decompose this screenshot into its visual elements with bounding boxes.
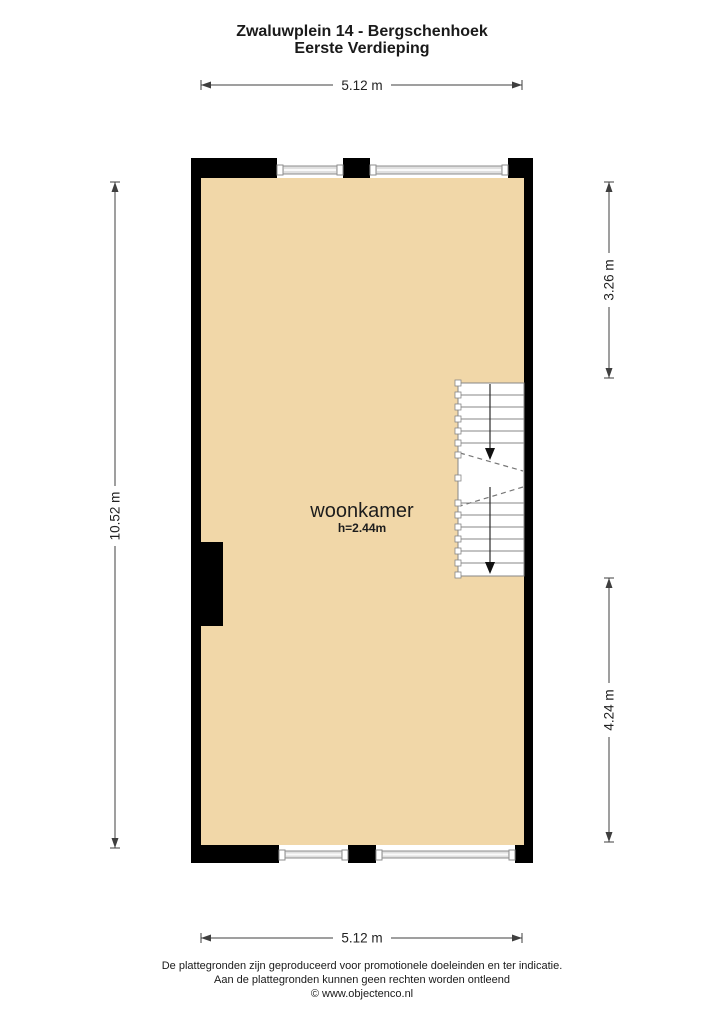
dimension-right-lower-label: 4.24 m: [602, 689, 617, 730]
room-name-label: woonkamer: [309, 500, 414, 522]
arrow-down-icon: [606, 368, 613, 378]
room-height-label: h=2.44m: [338, 521, 386, 535]
window-top-1: [277, 165, 343, 175]
footer-disclaimer-line1: De plattegronden zijn geproduceerd voor …: [162, 960, 563, 972]
dimension-bottom: 5.12 m: [201, 931, 522, 946]
arrow-left-icon: [201, 82, 211, 89]
page-title-floor: Eerste Verdieping: [294, 40, 429, 57]
dimension-right-upper-label: 3.26 m: [602, 259, 617, 300]
dimension-bottom-label: 5.12 m: [341, 931, 382, 946]
dimension-right-upper: 3.26 m: [602, 182, 617, 378]
arrow-down-icon: [112, 838, 119, 848]
arrow-right-icon: [512, 82, 522, 89]
wall-top-left: [191, 158, 277, 178]
page-title-address: Zwaluwplein 14 - Bergschenhoek: [236, 23, 488, 40]
dimension-right-lower: 4.24 m: [602, 578, 617, 842]
window-bottom-2: [376, 850, 515, 860]
floor-plan-svg: Zwaluwplein 14 - Bergschenhoek Eerste Ve…: [0, 0, 724, 1024]
window-bottom-1: [279, 850, 348, 860]
arrow-right-icon: [512, 935, 522, 942]
arrow-left-icon: [201, 935, 211, 942]
arrow-up-icon: [606, 182, 613, 192]
wall-bottom-right: [515, 845, 533, 863]
dimension-left-label: 10.52 m: [108, 492, 123, 541]
footer: De plattegronden zijn geproduceerd voor …: [162, 960, 563, 1000]
wall-right: [524, 158, 533, 863]
arrow-up-icon: [606, 578, 613, 588]
dimension-top-label: 5.12 m: [341, 78, 382, 93]
window-top-2: [370, 165, 508, 175]
wall-chimney-protrusion: [201, 542, 223, 626]
dimension-top: 5.12 m: [201, 78, 522, 93]
footer-copyright: © www.objectenco.nl: [311, 988, 413, 1000]
stair-stringer-ticks: [455, 380, 461, 578]
wall-bottom-left: [191, 845, 279, 863]
arrow-up-icon: [112, 182, 119, 192]
staircase: [455, 380, 524, 578]
wall-top-right: [508, 158, 533, 178]
wall-bottom-middle: [348, 845, 376, 863]
wall-left: [191, 158, 201, 863]
footer-disclaimer-line2: Aan de plattegronden kunnen geen rechten…: [214, 974, 510, 986]
dimension-left: 10.52 m: [108, 182, 123, 848]
arrow-down-icon: [606, 832, 613, 842]
floor-plan-page: Zwaluwplein 14 - Bergschenhoek Eerste Ve…: [0, 0, 724, 1024]
wall-top-middle: [343, 158, 370, 178]
